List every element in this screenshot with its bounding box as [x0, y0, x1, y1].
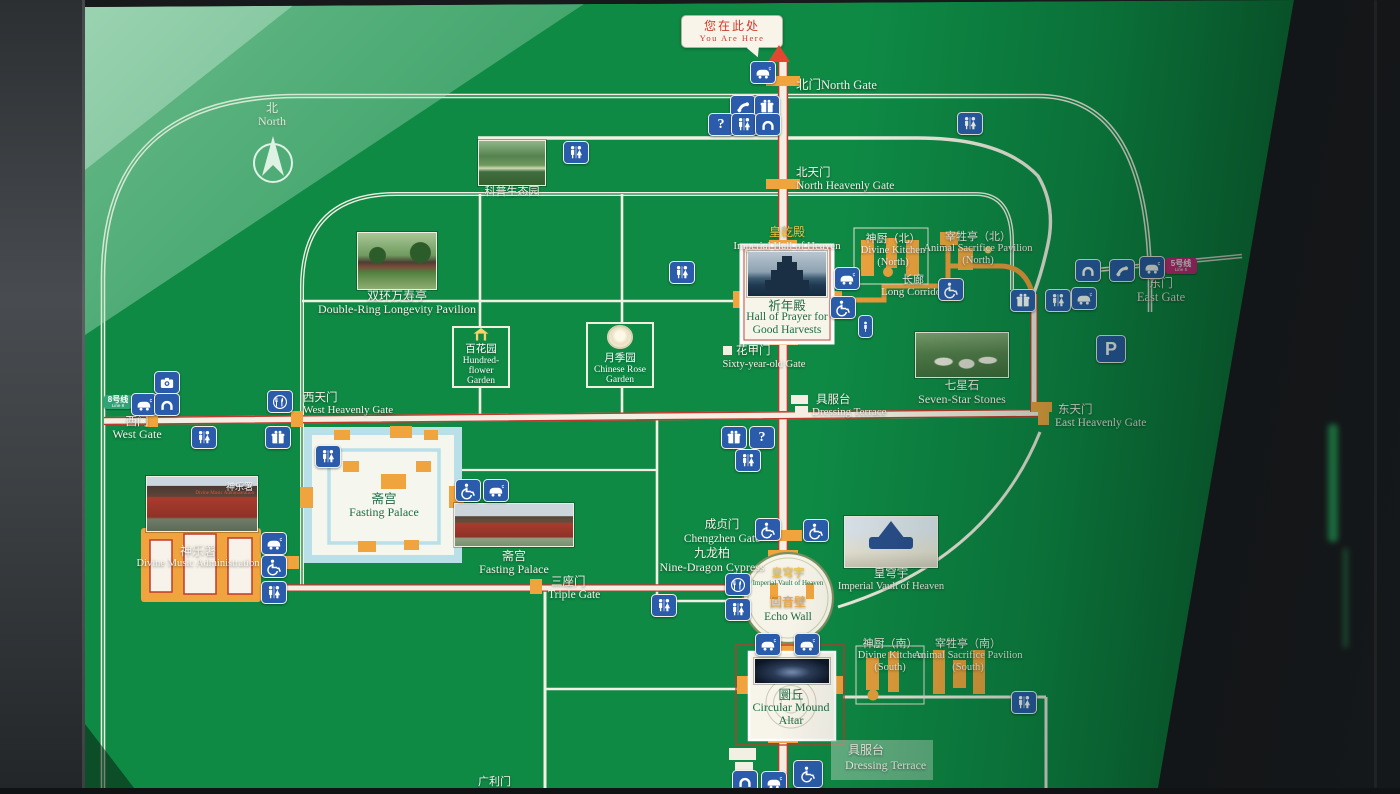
reflection-streak — [1328, 424, 1338, 542]
nine-dragon-zh: 九龙柏 — [694, 547, 730, 560]
hundred-flower-garden-box: 百花园 Hundred-flower Garden — [452, 326, 510, 388]
compass-en: North — [258, 115, 286, 128]
gift-icon — [265, 426, 291, 449]
seven-star-stones-photo — [915, 332, 1009, 378]
wheelchair-icon — [803, 519, 829, 542]
long-corridor-zh: 长廊 — [902, 274, 924, 286]
double-ring-en: Double-Ring Longevity Pavilion — [318, 303, 476, 316]
hall-of-prayer-photo — [747, 251, 827, 297]
person-icon — [858, 315, 873, 338]
rose-icon — [607, 325, 633, 349]
wheelchair-icon — [261, 555, 287, 578]
dressing-terrace-upper-en: Dressing Terrace — [812, 406, 886, 418]
chengzhen-zh: 成贞门 — [705, 519, 740, 532]
toilet-icon — [957, 112, 983, 135]
hundred-flower-zh: 百花园 — [465, 341, 497, 356]
seven-star-en: Seven-Star Stones — [918, 393, 1006, 406]
west-gate-en: West Gate — [112, 428, 161, 441]
dressing-terrace-upper-zh: 具服台 — [816, 394, 851, 407]
cart-icon — [1071, 287, 1097, 310]
echo-wall-en: Echo Wall — [764, 611, 812, 624]
toilet-icon — [669, 261, 695, 284]
toilet-icon — [191, 426, 217, 449]
east-gate-en: East Gate — [1137, 290, 1185, 304]
east-gate-zh: 东门 — [1149, 277, 1173, 290]
wheelchair-icon — [755, 518, 781, 541]
frame-edge-highlight — [1374, 0, 1377, 788]
cart-icon — [834, 267, 860, 290]
rose-garden-zh: 月季园 — [604, 350, 636, 365]
toilet-icon — [725, 598, 751, 621]
hall-of-prayer-en: Hall of Prayer for Good Harvests — [740, 311, 834, 337]
dressing-terrace-lower-en: Dressing Terrace — [845, 759, 926, 772]
toilet-icon — [651, 594, 677, 617]
compass-arrow-icon — [246, 130, 300, 188]
fasting-palace-en: Fasting Palace — [349, 506, 419, 519]
science-garden-photo — [478, 140, 546, 186]
rose-garden-en: Chinese Rose Garden — [589, 365, 651, 385]
cart-icon — [794, 633, 820, 656]
triple-gate-zh: 三座门 — [551, 576, 586, 589]
imperial-hall-zh: 皇乾殿 — [769, 226, 805, 239]
west-heavenly-zh: 西天门 — [303, 392, 338, 405]
north-heavenly-gate-label: 北天门North Heavenly Gate — [796, 167, 894, 193]
east-heavenly-en: East Heavenly Gate — [1055, 417, 1146, 430]
pavilion-icon — [473, 328, 489, 341]
nine-dragon-en: Nine-Dragon Cypress — [660, 561, 765, 574]
arch-icon — [755, 113, 781, 136]
arch-icon — [732, 770, 758, 793]
echo-wall-zh: 回音壁 — [770, 596, 806, 609]
you-are-here-callout: 您在此处 You Are Here — [681, 15, 783, 48]
chengzhen-en: Chengzhen Gate — [684, 533, 760, 546]
camera-icon — [154, 371, 180, 394]
sign-frame-left — [0, 0, 85, 788]
arch-icon — [154, 393, 180, 416]
parking-icon: P — [1096, 335, 1126, 363]
fasting-photo-en: Fasting Palace — [479, 563, 549, 576]
animal-sacrifice-north-en: Animal Sacrifice Pavilion (North) — [919, 243, 1037, 267]
divine-music-photo-caption-en: Divine Music Administration — [195, 491, 254, 496]
triple-gate-en: Triple Gate — [548, 589, 600, 602]
long-corridor-en: Long Corridor — [881, 286, 945, 298]
hundred-flower-en: Hundred-flower Garden — [456, 356, 506, 386]
toilet-icon — [1045, 289, 1071, 312]
science-garden-label: 科普生态园 — [485, 186, 540, 198]
wheelchair-icon — [938, 278, 964, 301]
wheelchair-icon — [793, 760, 823, 788]
toilet-icon — [315, 445, 341, 468]
imperial-vault-photo — [844, 516, 938, 568]
vault-base-silhouette — [869, 537, 913, 549]
imperial-vault-circle-zh: 皇穹宇 — [772, 567, 805, 579]
animal-sacrifice-south-en: Animal Sacrifice Pavilion (South) — [908, 650, 1028, 674]
imperial-hall-en: Imperial Hall of Heaven — [733, 240, 840, 252]
axis-roads — [104, 57, 1044, 788]
circular-mound-photo — [754, 658, 830, 684]
wheelchair-icon — [455, 479, 481, 502]
phone-icon — [1109, 259, 1135, 282]
reflection-streak — [1343, 548, 1348, 648]
imperial-vault-photo-zh: 皇穹宇 — [874, 568, 909, 581]
divine-kitchen-north-zh: 神厨（北） — [866, 233, 921, 245]
restaurant-icon — [725, 573, 751, 596]
fasting-palace-zh: 斋宫 — [371, 492, 396, 506]
divine-music-zh: 神乐署 — [180, 545, 216, 558]
subway-line8-badge: 8号线Line 8 — [104, 395, 132, 409]
imperial-vault-circle-en: Imperial Vault of Heaven — [753, 580, 824, 588]
cart-icon — [761, 771, 787, 794]
sixty-gate-en: Sixty-year-old Gate — [721, 359, 807, 371]
arch-icon — [1075, 259, 1101, 282]
cart-icon — [755, 633, 781, 656]
dressing-terrace-lower-zh: 具服台 — [848, 744, 884, 757]
you-are-here-marker — [768, 45, 790, 62]
gift-icon — [721, 426, 747, 449]
question-icon: ? — [749, 426, 775, 449]
cart-icon — [1139, 256, 1165, 279]
wheelchair-icon — [830, 296, 856, 319]
north-gate-label: 北门North Gate — [796, 78, 877, 92]
toilet-icon — [563, 141, 589, 164]
cart-icon — [750, 61, 776, 84]
west-heavenly-en: West Heavenly Gate — [303, 404, 393, 416]
guangli-gate-label: 广利门 — [478, 776, 511, 788]
subway-line5-badge: 5号线Line 5 — [1165, 258, 1197, 274]
gift-icon — [1010, 289, 1036, 312]
seven-star-zh: 七星石 — [945, 380, 980, 393]
sixty-gate-zh: 花甲门 — [736, 345, 771, 358]
divine-music-en: Divine Music Administration — [136, 558, 259, 570]
imperial-vault-photo-en: Imperial Vault of Heaven — [838, 581, 944, 593]
divine-music-photo: 神乐署 Divine Music Administration — [146, 476, 258, 532]
toilet-icon — [735, 449, 761, 472]
cart-icon — [483, 479, 509, 502]
double-ring-pavilion-photo — [357, 232, 437, 290]
park-map-photo: 神乐署 Divine Music Administration 百花园 Hund… — [0, 0, 1400, 788]
cart-icon — [261, 532, 287, 555]
fasting-palace-photo — [454, 503, 574, 547]
circular-mound-en: Circular Mound Altar — [748, 701, 834, 728]
east-heavenly-zh: 东天门 — [1058, 404, 1093, 417]
divine-kitchen-south-zh: 神厨（南） — [863, 638, 918, 650]
toilet-icon — [731, 113, 757, 136]
toilet-icon — [1011, 691, 1037, 714]
toilet-icon — [261, 581, 287, 604]
animal-sacrifice-south-zh: 宰牲亭（南） — [935, 638, 1001, 650]
you-are-here-zh: 您在此处 — [704, 20, 760, 33]
chinese-rose-garden-box: 月季园 Chinese Rose Garden — [586, 322, 654, 388]
animal-sacrifice-north-zh: 宰牲亭（北） — [945, 231, 1011, 243]
restaurant-icon — [267, 390, 293, 413]
